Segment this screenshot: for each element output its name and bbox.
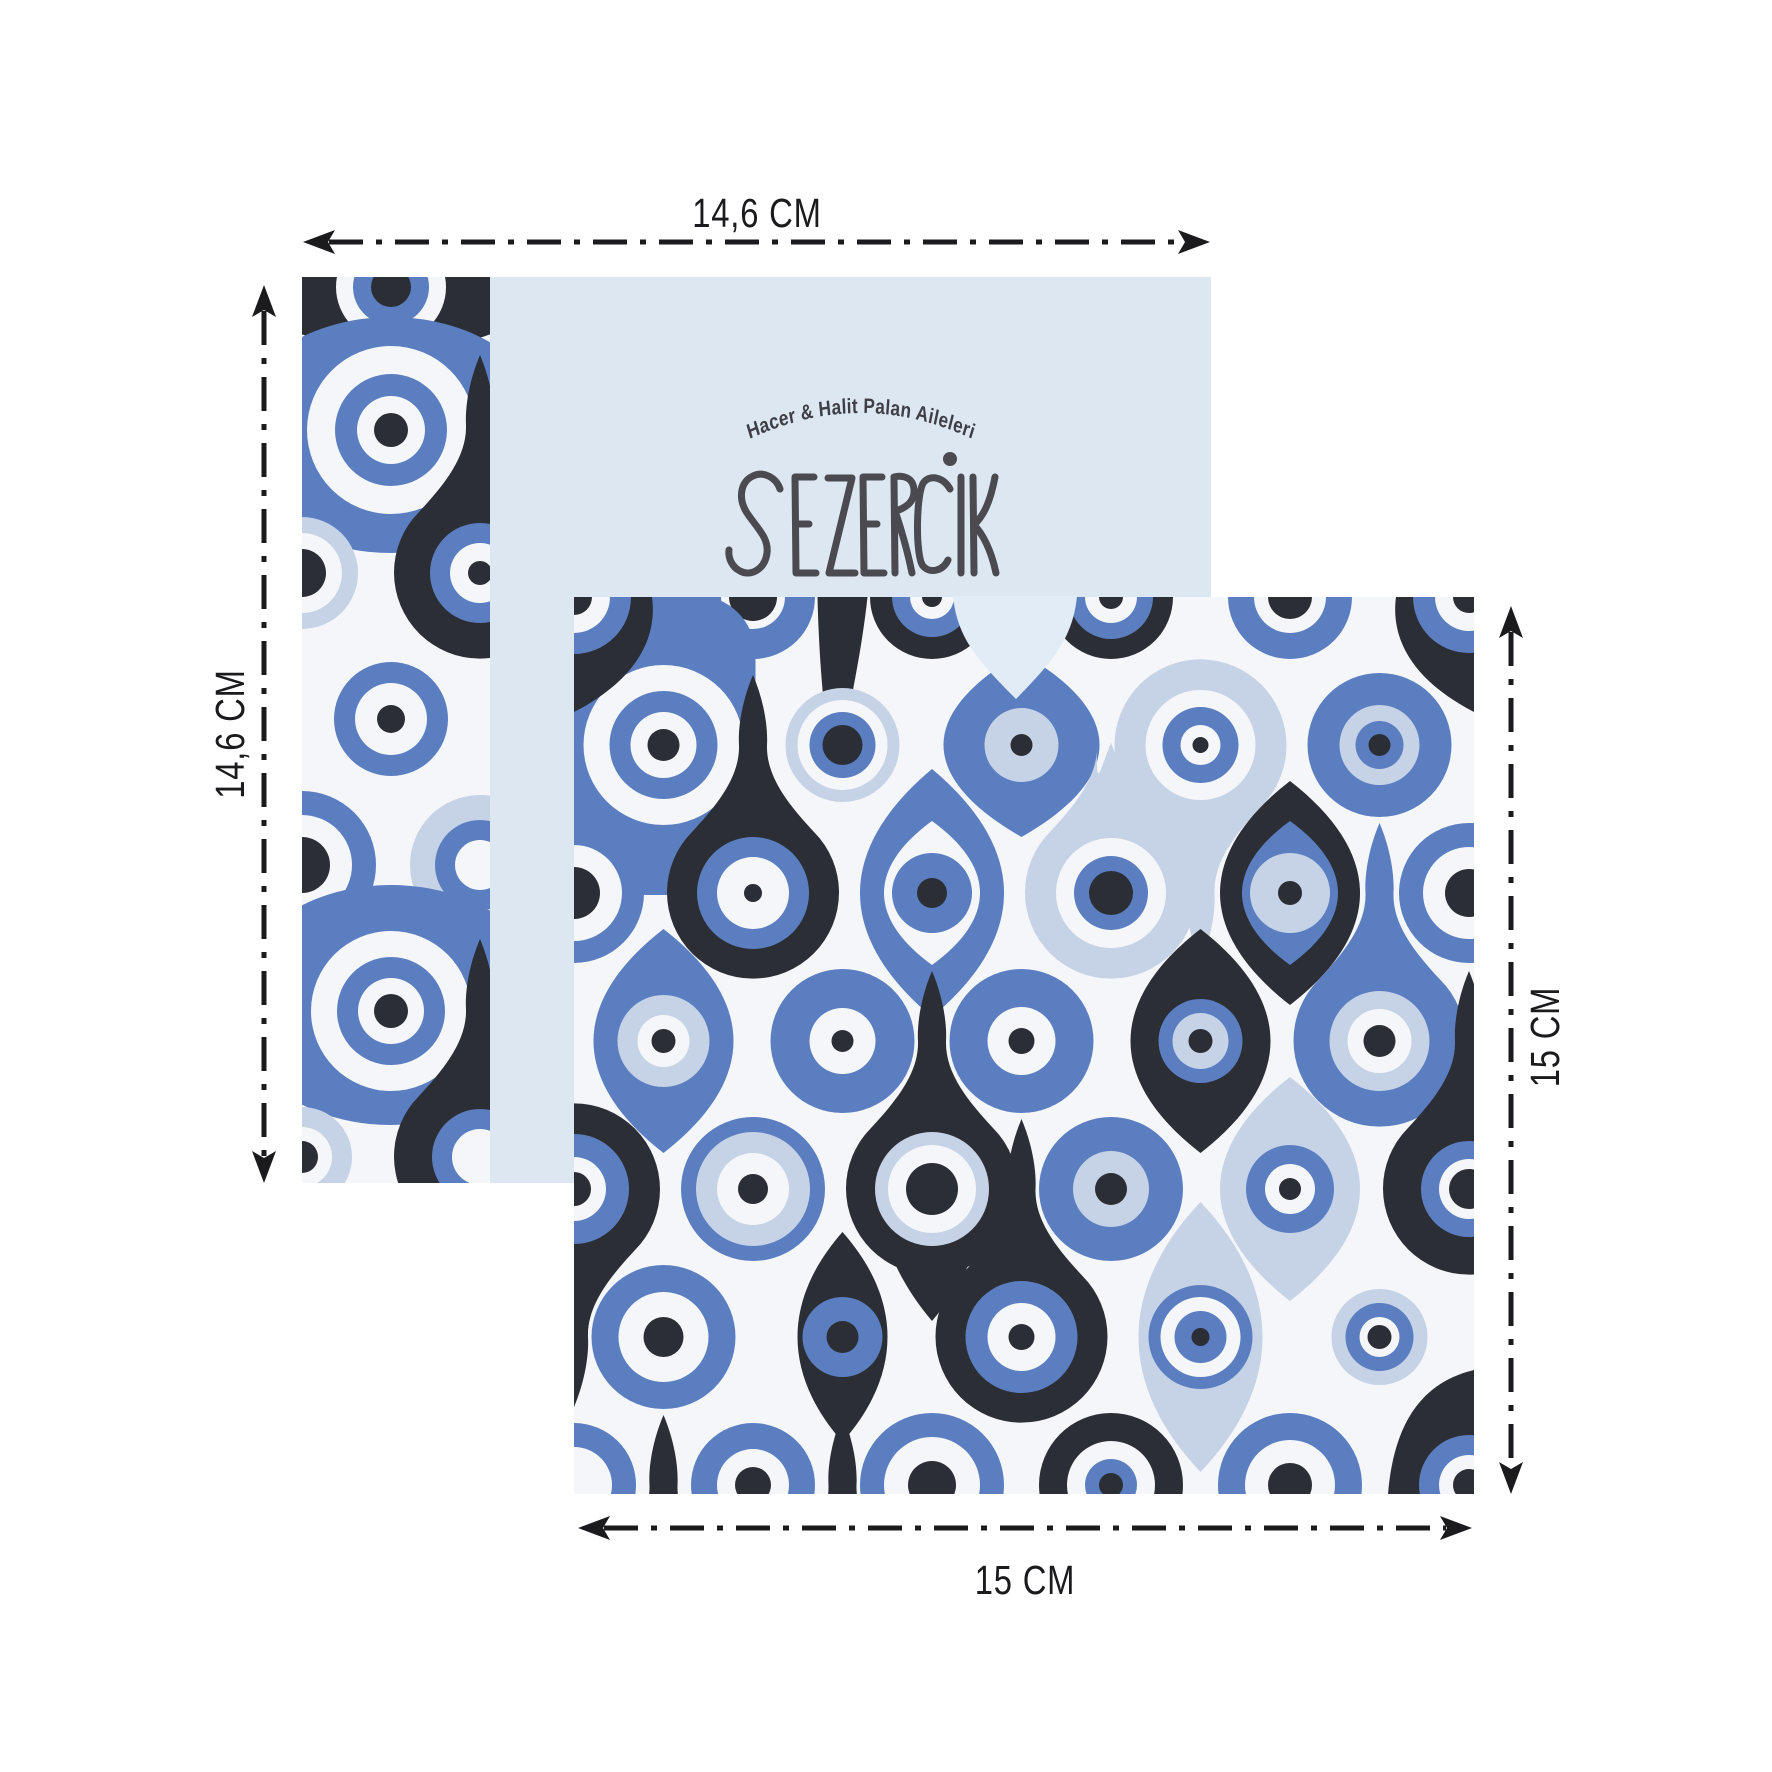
svg-text:14,6 CM: 14,6 CM: [206, 669, 252, 799]
svg-text:15 CM: 15 CM: [1521, 987, 1567, 1088]
svg-text:15 CM: 15 CM: [975, 1556, 1076, 1602]
svg-text:14,6 CM: 14,6 CM: [692, 189, 822, 235]
